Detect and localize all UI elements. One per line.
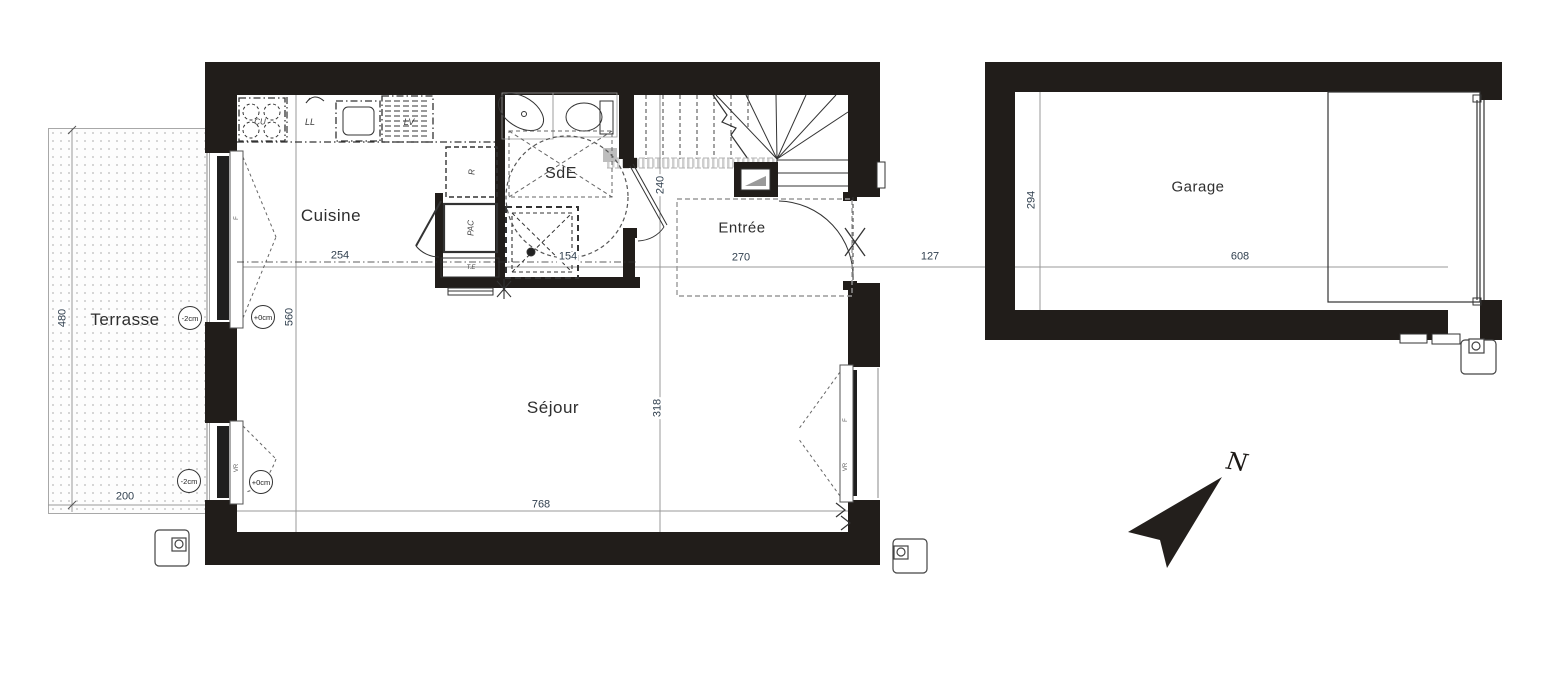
room-label-cuisine: Cuisine bbox=[301, 206, 361, 226]
dim-terrace-width: 200 bbox=[114, 492, 136, 503]
window-label-right-vr: VR bbox=[843, 463, 849, 471]
washer-icon bbox=[306, 97, 324, 103]
room-label-sde: SdE bbox=[545, 165, 577, 183]
heat-pump-box bbox=[416, 201, 497, 257]
terrace-window-top bbox=[207, 151, 276, 328]
downspout bbox=[877, 162, 885, 188]
dim-terrace-height: 480 bbox=[58, 307, 69, 329]
window-label-left-top: F bbox=[234, 216, 240, 220]
north-label: N bbox=[1225, 447, 1250, 478]
dim-sejour-width: 768 bbox=[530, 500, 552, 511]
te-box bbox=[441, 258, 499, 295]
room-label-entree: Entrée bbox=[718, 220, 765, 237]
sink-icon bbox=[336, 101, 380, 141]
level-badge-floor-bottom: +0cm bbox=[249, 470, 273, 494]
dim-cuisine-width: 254 bbox=[329, 251, 351, 262]
slope-chevrons bbox=[836, 503, 850, 530]
interior-walls bbox=[435, 95, 640, 288]
label-dishwasher: LV bbox=[404, 117, 415, 127]
garage-walls bbox=[985, 62, 1502, 340]
utility-box-right bbox=[893, 539, 927, 573]
level-badge-terrace-bottom: -2cm bbox=[177, 469, 201, 493]
bathroom-fixtures bbox=[492, 86, 667, 278]
label-cooktop: CU bbox=[254, 118, 266, 127]
dim-entree-width: 270 bbox=[730, 253, 752, 264]
label-heat-pump: PAC bbox=[467, 220, 476, 236]
label-fridge: R bbox=[468, 169, 477, 175]
north-arrow-icon bbox=[1128, 477, 1222, 568]
level-badge-terrace-top: -2cm bbox=[178, 306, 202, 330]
dim-sde-door: 240 bbox=[656, 174, 667, 196]
dim-garage-width: 608 bbox=[1229, 252, 1251, 263]
exterior-walls bbox=[205, 62, 880, 565]
dim-sejour-depth: 318 bbox=[653, 397, 664, 419]
window-label-left-bottom: VR bbox=[234, 464, 240, 472]
floor-plan: Terrasse Cuisine SdE Entrée Séjour Garag… bbox=[0, 0, 1561, 688]
room-label-sejour: Séjour bbox=[527, 398, 579, 418]
room-label-terrasse: Terrasse bbox=[90, 310, 159, 330]
sejour-window bbox=[798, 365, 878, 502]
garage-door bbox=[1328, 92, 1484, 305]
utility-box-left bbox=[155, 530, 189, 566]
floor-plan-drawing bbox=[0, 0, 1561, 688]
dim-interior-depth: 560 bbox=[285, 306, 296, 328]
dim-garage-depth: 294 bbox=[1027, 189, 1038, 211]
label-washer: LL bbox=[305, 117, 315, 127]
staircase bbox=[603, 95, 848, 196]
dim-shower-width: 154 bbox=[557, 252, 579, 263]
toilet-icon bbox=[566, 101, 613, 134]
stair-shaft bbox=[734, 162, 778, 197]
dim-gap: 127 bbox=[919, 252, 941, 263]
utility-box-garage bbox=[1461, 339, 1496, 374]
room-label-garage: Garage bbox=[1171, 179, 1224, 196]
label-te: T.E bbox=[467, 265, 476, 271]
entree-zone bbox=[677, 199, 852, 296]
window-label-right-f: F bbox=[843, 418, 849, 422]
level-badge-floor-top: +0cm bbox=[251, 305, 275, 329]
clearance-zone bbox=[509, 131, 612, 197]
